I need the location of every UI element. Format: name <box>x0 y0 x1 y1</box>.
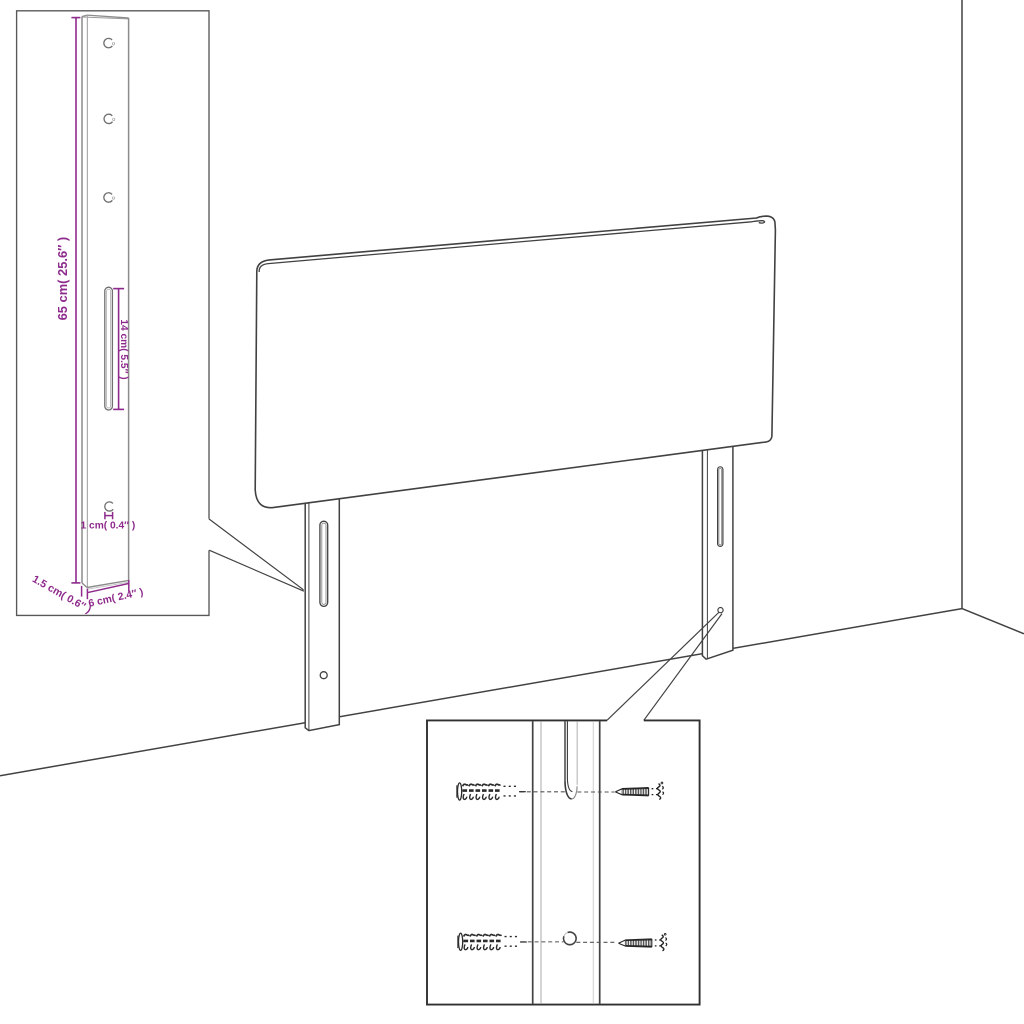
svg-text:65 cm( 25.6″ ): 65 cm( 25.6″ ) <box>55 237 70 321</box>
svg-text:1 cm( 0.4″ ): 1 cm( 0.4″ ) <box>81 521 136 532</box>
svg-text:14 cm( 5.5″ ): 14 cm( 5.5″ ) <box>118 319 129 379</box>
svg-text:1.5 cm( 0.6″ ): 1.5 cm( 0.6″ ) <box>30 573 93 616</box>
